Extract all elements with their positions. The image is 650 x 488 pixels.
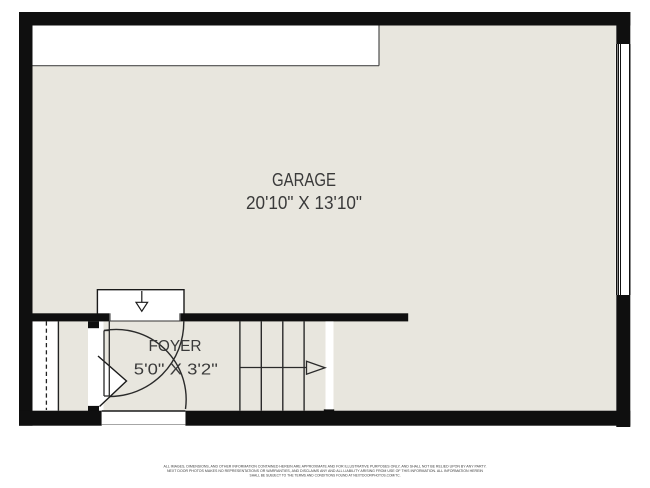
svg-text:SHALL BE SUBJECT TO THE TERMS: SHALL BE SUBJECT TO THE TERMS AND CONDIT… (250, 472, 401, 477)
svg-text:GARAGE: GARAGE (272, 169, 336, 190)
svg-text:FOYER: FOYER (149, 338, 202, 355)
svg-text:5'0" X 3'2": 5'0" X 3'2" (134, 361, 218, 378)
svg-text:20'10" X 13'10": 20'10" X 13'10" (246, 192, 362, 213)
